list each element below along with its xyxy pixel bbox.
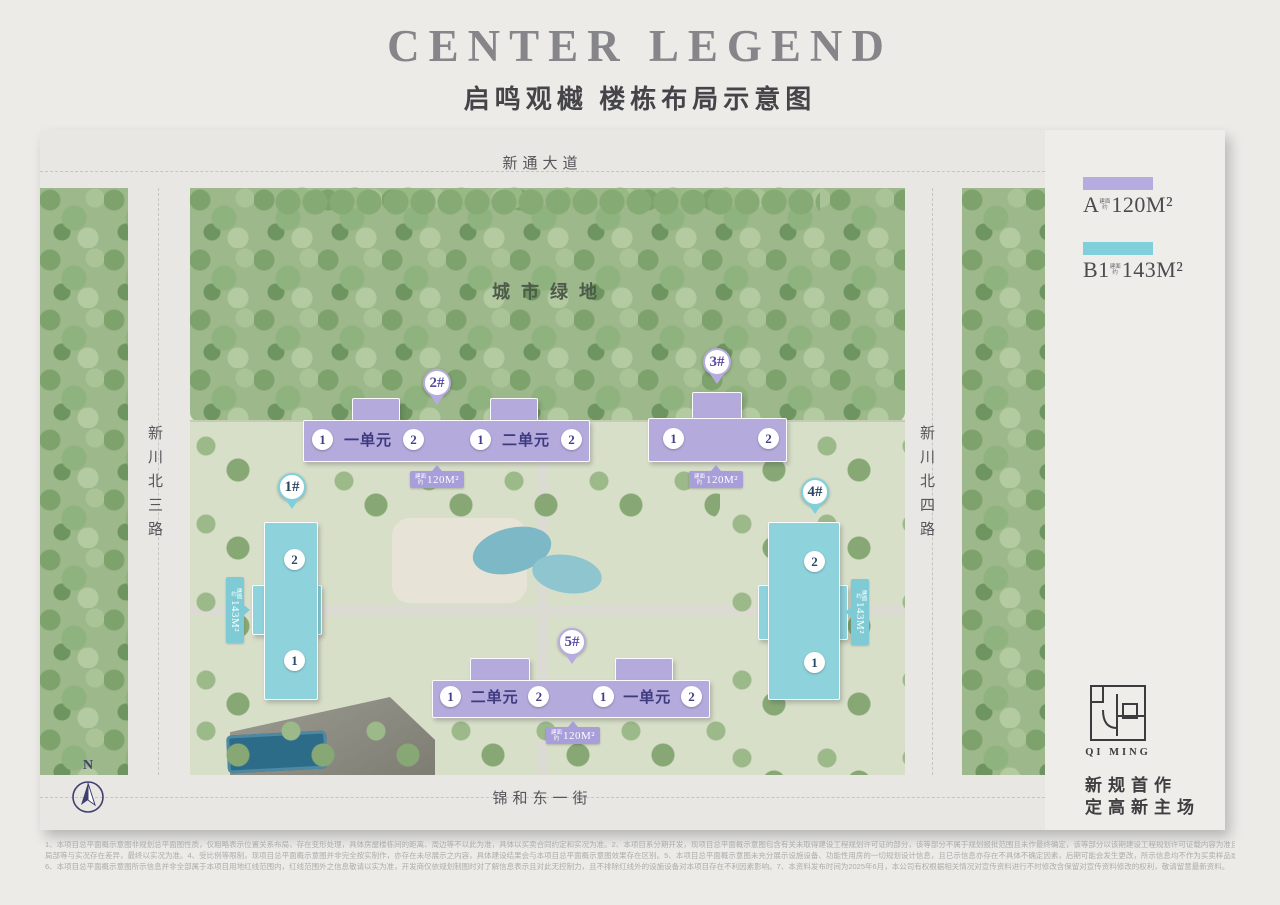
- legend-swatch-type-a: [1083, 177, 1153, 190]
- building-3-wing: [692, 392, 742, 420]
- road-right-label: 新川北四路: [916, 425, 937, 545]
- area-tag-prefix: 建面约: [694, 474, 705, 486]
- legend-area-prefix: 建面约: [1110, 264, 1121, 276]
- legend-area-value: 120M²: [1111, 192, 1173, 218]
- green-area-label: 城市绿地: [440, 278, 660, 304]
- pin-tail-icon: [285, 499, 299, 509]
- unit-number-circle: 1: [440, 686, 461, 707]
- building-4-footprint: [768, 522, 840, 700]
- disclaimer-line: 1、本项目总平面概示意图非规划总平面图性质，仅粗略表示位置关系布局，存在变形处理…: [45, 839, 1235, 850]
- unit-number-circle: 2: [758, 428, 779, 449]
- page-title: CENTER LEGEND: [0, 20, 1280, 72]
- legend-item-type-a: A 建面约 120M²: [1083, 192, 1173, 218]
- unit-name-label: 二单元: [502, 429, 550, 450]
- area-tag-prefix: 建面约: [855, 589, 866, 601]
- area-tag-building-1: 建面约 143M²: [226, 577, 244, 643]
- unit-number-circle: 1: [470, 429, 491, 450]
- logo-wordmark: QI MING: [1079, 747, 1157, 758]
- disclaimer-text: 1、本项目总平面概示意图非规划总平面图性质，仅粗略表示位置关系布局，存在变形处理…: [45, 839, 1235, 872]
- pin-tail-icon: [710, 374, 724, 384]
- area-tag-value: 143M²: [229, 600, 241, 632]
- area-tag-building-5: 建面约 120M²: [546, 727, 600, 744]
- disclaimer-line: 6、本项目总平面概示意图所示信息并非全部属于本项目用地红线范围内，红线范围外之信…: [45, 861, 1235, 872]
- area-tag-prefix: 建面约: [415, 474, 426, 486]
- area-tag-value: 120M²: [706, 474, 738, 486]
- building-pin-5: 5#: [557, 628, 587, 664]
- qiming-logo-icon: [1087, 682, 1149, 749]
- building-pin-4: 4#: [800, 478, 830, 514]
- road-left-label: 新川北三路: [144, 425, 165, 545]
- area-tag-value: 120M²: [563, 730, 595, 742]
- area-tag-building-3: 建面约 120M²: [689, 471, 743, 488]
- building-pin-2: 2#: [422, 369, 452, 405]
- road-top-label: 新通大道: [40, 152, 1045, 173]
- legend-type-code: B1: [1083, 257, 1110, 283]
- legend-item-type-b1: B1 建面约 143M²: [1083, 257, 1183, 283]
- building-pin-1: 1#: [277, 473, 307, 509]
- building-5-unit-row: 1 二单元 2 1 一单元 2: [440, 686, 702, 707]
- page-subtitle: 启鸣观樾 楼栋布局示意图: [0, 79, 1280, 116]
- unit-name-label: 二单元: [471, 686, 519, 707]
- city-green-area: [190, 188, 905, 422]
- siteplan-board: 新通大道 锦和东一街 新川北三路 新川北四路 城市绿地: [40, 130, 1225, 830]
- building-pin-3: 3#: [702, 348, 732, 384]
- area-tag-building-2: 建面约 120M²: [410, 471, 464, 488]
- building-pin-label: 2#: [423, 369, 451, 397]
- unit-number-circle: 2: [561, 429, 582, 450]
- road-bottom: 锦和东一街: [40, 775, 1045, 830]
- area-tag-value: 143M²: [854, 602, 866, 634]
- building-pin-label: 1#: [278, 473, 306, 501]
- area-tag-prefix: 建面约: [230, 587, 241, 599]
- area-tag-building-4: 建面约 143M²: [851, 579, 869, 645]
- legend-swatch-type-b1: [1083, 242, 1153, 255]
- unit-number-circle: 1: [804, 652, 825, 673]
- unit-name-label: 一单元: [344, 429, 392, 450]
- unit-number-circle: 2: [804, 551, 825, 572]
- unit-number-circle: 2: [528, 686, 549, 707]
- legend-panel: A 建面约 120M² B1 建面约 143M² QI MING 新规首作 定高…: [1045, 130, 1225, 830]
- unit-number-circle: 2: [284, 549, 305, 570]
- unit-number-circle: 1: [284, 650, 305, 671]
- green-strip-left: [40, 188, 128, 775]
- unit-number-circle: 1: [663, 428, 684, 449]
- building-pin-label: 5#: [558, 628, 586, 656]
- building-5-wing: [615, 658, 673, 682]
- tree-row-north: [275, 184, 820, 222]
- building-5-wing: [470, 658, 530, 682]
- unit-number-circle: 1: [593, 686, 614, 707]
- pin-tail-icon: [808, 504, 822, 514]
- slogan-line-2: 定高新主场: [1085, 793, 1200, 818]
- disclaimer-line: 局部等与实况存在差异，最终以实况为准。4、受比例等限制，现项目总平面概示意图并非…: [45, 850, 1235, 861]
- unit-name-label: 一单元: [623, 686, 671, 707]
- pin-tail-icon: [430, 395, 444, 405]
- unit-number-circle: 2: [403, 429, 424, 450]
- road-top: 新通大道: [40, 130, 1045, 188]
- area-tag-prefix: 建面约: [551, 730, 562, 742]
- pin-tail-icon: [565, 654, 579, 664]
- compass-north-icon: N: [68, 756, 108, 825]
- legend-type-code: A: [1083, 192, 1099, 218]
- tree-cluster: [192, 715, 728, 775]
- building-pin-label: 3#: [703, 348, 731, 376]
- legend-area-value: 143M²: [1122, 257, 1184, 283]
- unit-number-circle: 2: [681, 686, 702, 707]
- green-strip-right: [962, 188, 1045, 775]
- unit-number-circle: 1: [312, 429, 333, 450]
- area-tag-value: 120M²: [427, 474, 459, 486]
- legend-area-prefix: 建面约: [1099, 199, 1110, 211]
- building-2-unit-row: 1 一单元 2 1 二单元 2: [312, 429, 582, 450]
- siteplan-map: 新通大道 锦和东一街 新川北三路 新川北四路 城市绿地: [40, 130, 1045, 830]
- road-bottom-label: 锦和东一街: [40, 787, 1045, 808]
- compass-n-letter: N: [83, 758, 93, 773]
- tree-cluster: [330, 465, 720, 520]
- building-pin-label: 4#: [801, 478, 829, 506]
